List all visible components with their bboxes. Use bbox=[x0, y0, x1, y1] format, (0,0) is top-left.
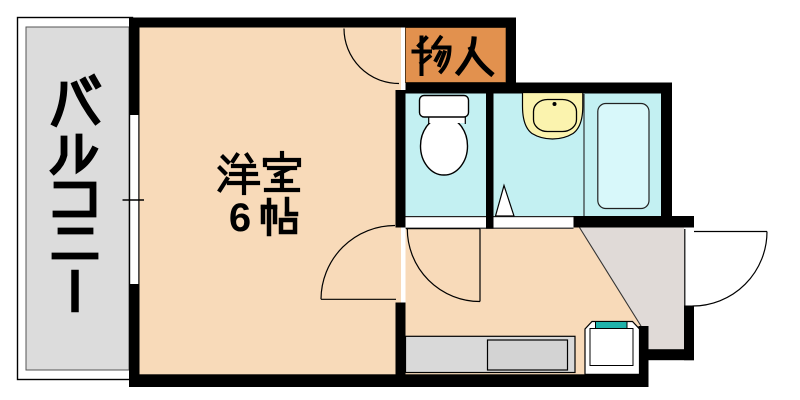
svg-text:6: 6 bbox=[229, 196, 251, 240]
